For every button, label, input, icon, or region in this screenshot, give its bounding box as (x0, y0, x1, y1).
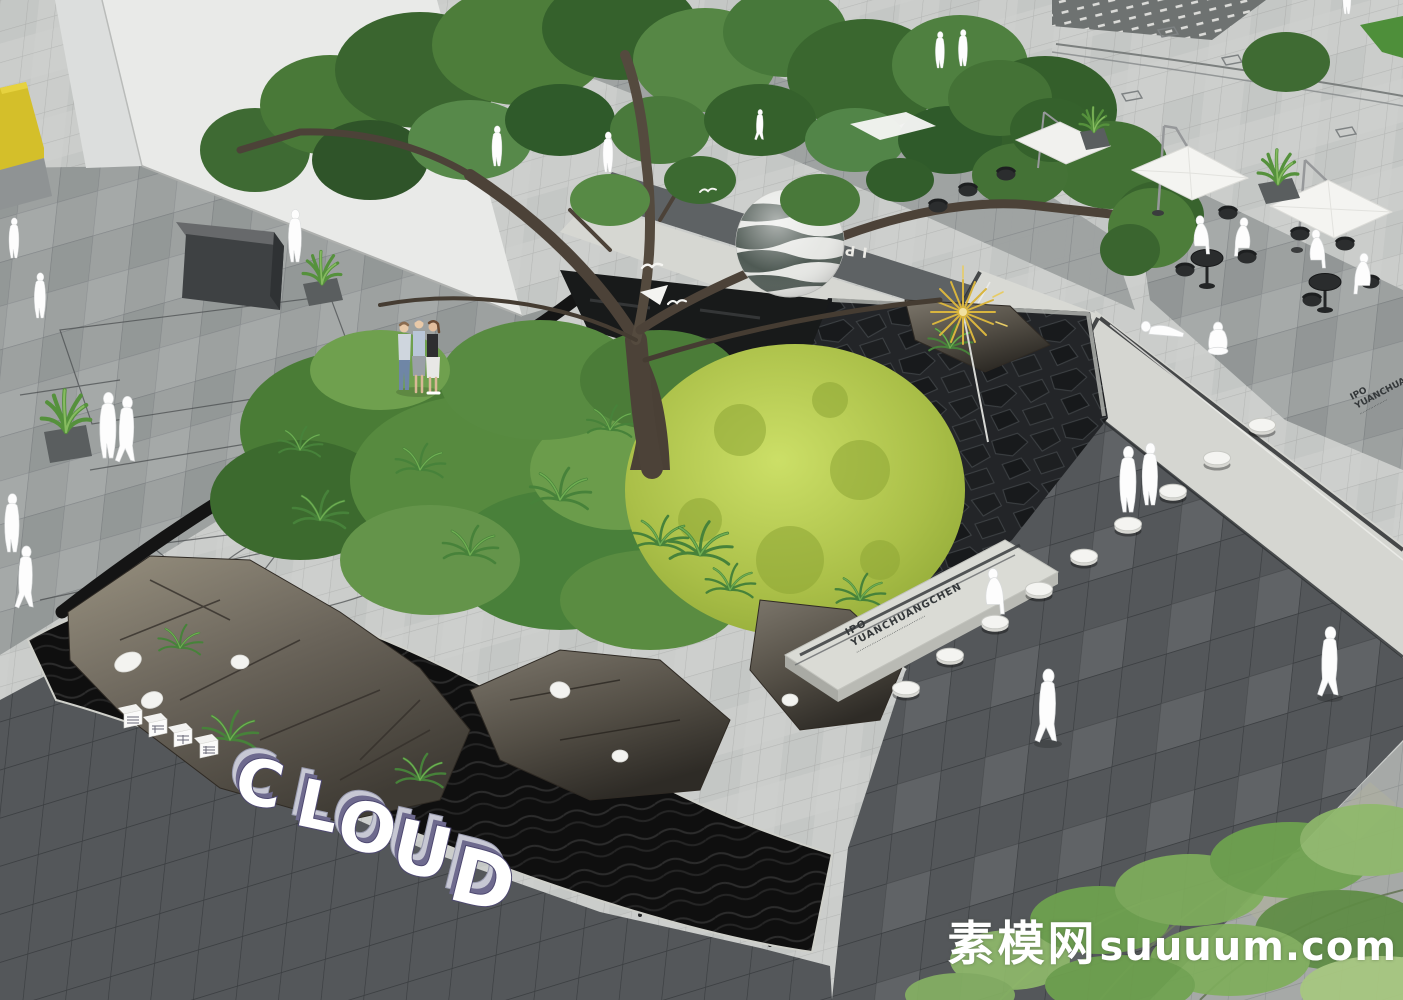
cafe-chair (1336, 238, 1355, 251)
watermark: 素模网suuuum.com (948, 905, 1397, 974)
cafe-chair (1238, 251, 1257, 264)
cafe-chair (1291, 228, 1310, 241)
watermark-latin: suuuum.com (1100, 924, 1397, 970)
render-canvas: IPO YUANCHUANGCHEN ·····················… (0, 0, 1403, 1000)
monolith-wall (176, 222, 284, 310)
plaza-chair (929, 200, 948, 213)
watermark-cn: 素模网 (948, 905, 1098, 974)
plaza-chair (997, 168, 1016, 181)
cafe-chair (1303, 294, 1322, 307)
cafe-chair (1219, 207, 1238, 220)
cafe-chair (1176, 264, 1195, 277)
plaza-chair (959, 184, 978, 197)
